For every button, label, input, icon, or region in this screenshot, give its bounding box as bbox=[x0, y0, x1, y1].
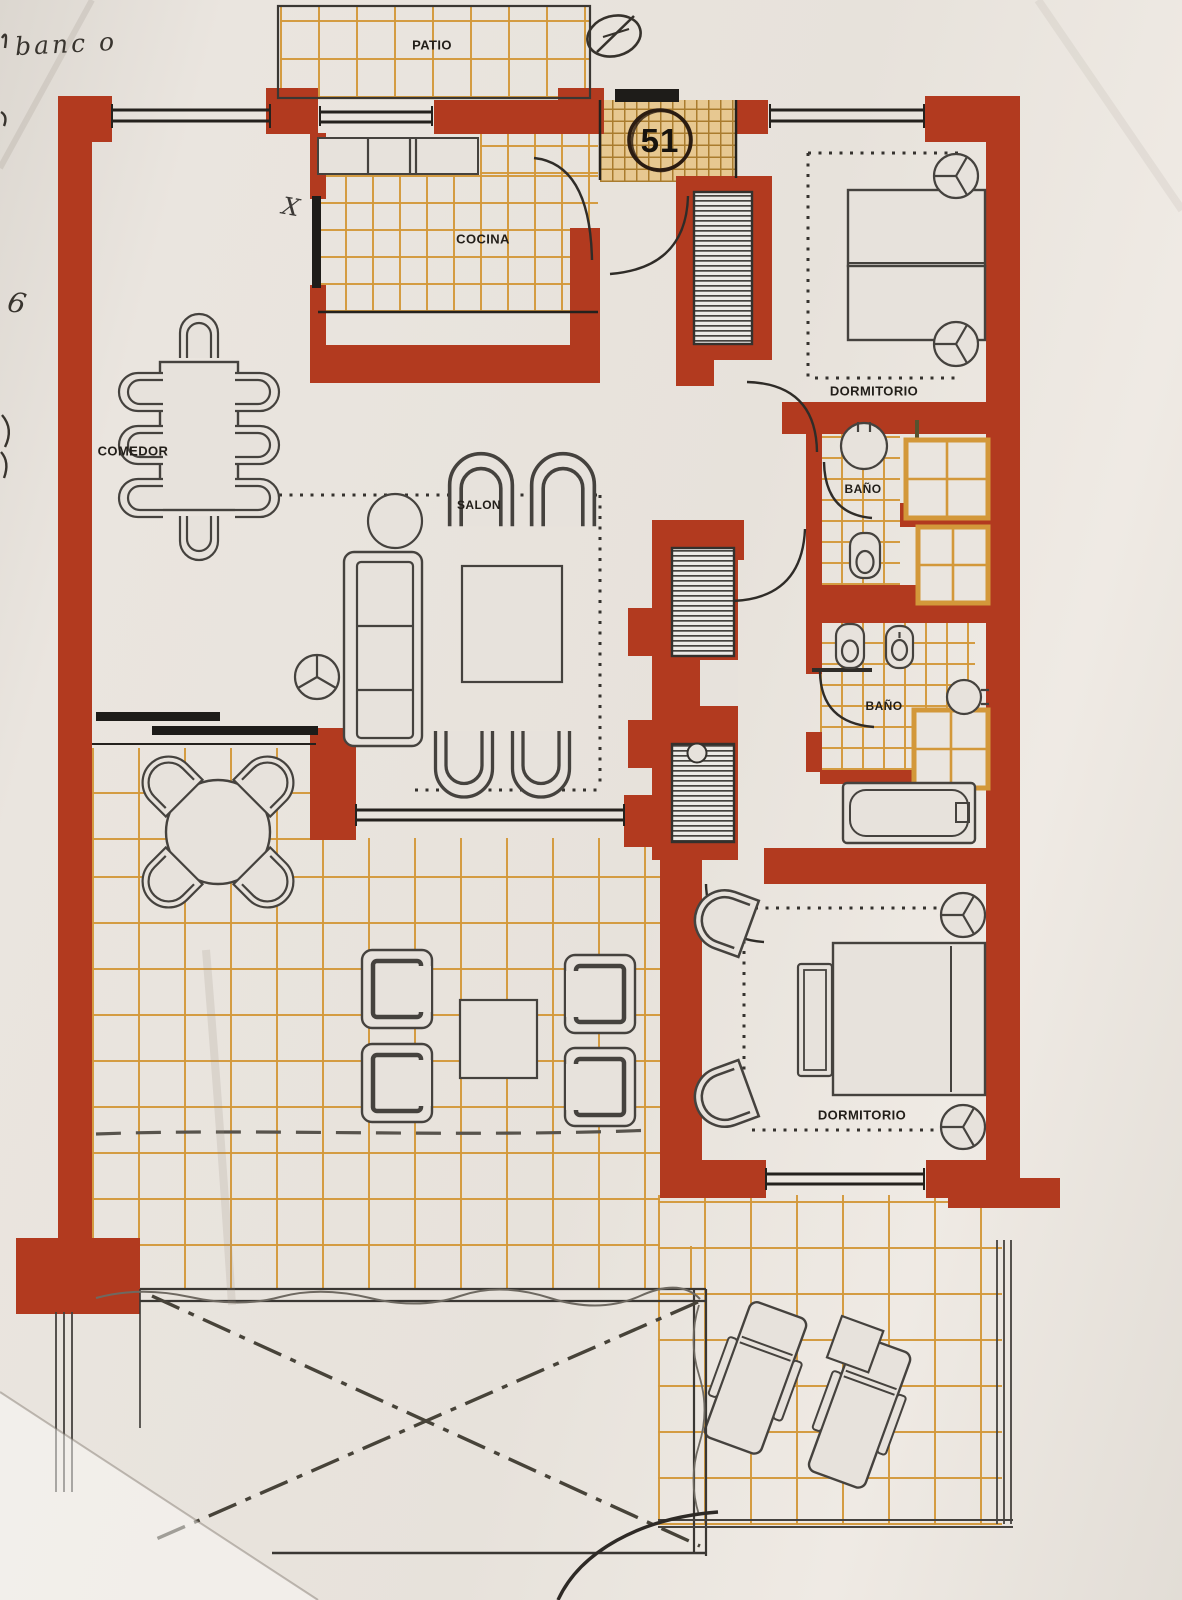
floor-plan-scan: PATIO COCINA COMEDOR SALON DORMITORIO BA… bbox=[0, 0, 1182, 1600]
handwritten-circled-mark bbox=[583, 10, 646, 63]
room-label-dormitorio-bottom: DORMITORIO bbox=[818, 1108, 906, 1123]
bath-top-fixtures bbox=[841, 422, 887, 578]
pencil-dash-line bbox=[96, 1130, 654, 1134]
room-label-salon: SALON bbox=[457, 498, 501, 512]
handwriting-top-left: banc o bbox=[14, 27, 117, 61]
room-label-bano-bottom: BAÑO bbox=[866, 699, 903, 713]
dining-table-group bbox=[119, 314, 279, 560]
sun-loungers-group bbox=[694, 1297, 921, 1493]
kitchen-door-leaf bbox=[312, 196, 321, 288]
unit-number: 51 bbox=[641, 122, 680, 160]
room-label-dormitorio-top: DORMITORIO bbox=[830, 384, 918, 399]
room-label-bano-top: BAÑO bbox=[845, 482, 882, 496]
terrace-lounge-group bbox=[362, 950, 635, 1126]
terrace-dining-group bbox=[132, 746, 304, 918]
room-label-comedor: COMEDOR bbox=[98, 444, 169, 459]
room-label-cocina: COCINA bbox=[456, 232, 510, 247]
bedroom-top-group bbox=[848, 154, 985, 366]
margin-scribbles bbox=[1, 35, 718, 1600]
wall-niche bbox=[700, 660, 738, 706]
room-label-patio: PATIO bbox=[412, 38, 452, 53]
